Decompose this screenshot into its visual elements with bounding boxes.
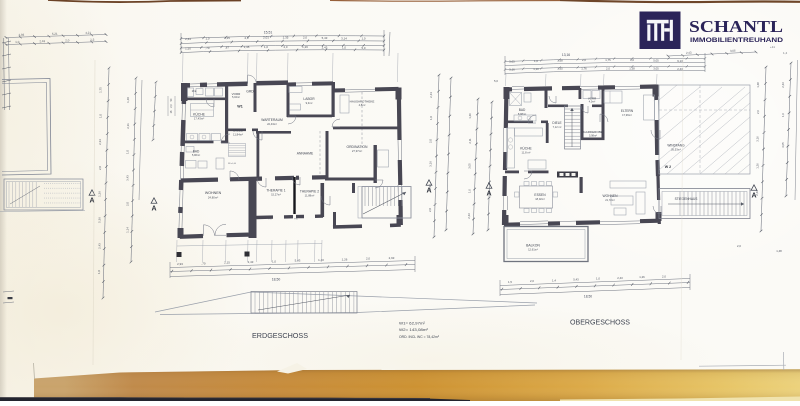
svg-text:2,93: 2,93	[19, 33, 25, 37]
svg-text:ELTERN: ELTERN	[621, 109, 634, 113]
svg-text:OBERGESCHOSS: OBERGESCHOSS	[570, 318, 630, 327]
svg-text:THERAPIE 2: THERAPIE 2	[300, 190, 319, 194]
svg-text:5,43: 5,43	[322, 36, 328, 40]
svg-text:2,34: 2,34	[98, 139, 102, 145]
svg-text:2,01: 2,01	[263, 36, 269, 40]
svg-text:4,21: 4,21	[85, 31, 91, 35]
svg-text:9,3m²: 9,3m²	[306, 101, 313, 105]
svg-text:3,05: 3,05	[781, 142, 785, 148]
svg-text:2,43: 2,43	[185, 37, 191, 41]
svg-text:STIEGENHAUS: STIEGENHAUS	[675, 197, 698, 201]
svg-text:,87: ,87	[225, 46, 229, 50]
svg-text:BAD: BAD	[519, 108, 526, 112]
svg-text:17,43m²: 17,43m²	[194, 117, 204, 121]
svg-text:2,0: 2,0	[662, 274, 666, 278]
svg-text:5,05: 5,05	[509, 59, 515, 63]
svg-text:1,26: 1,26	[755, 163, 759, 169]
svg-text:ANNAHME: ANNAHME	[297, 152, 314, 156]
svg-text:3,16: 3,16	[756, 136, 760, 142]
svg-text:2,15: 2,15	[224, 36, 230, 40]
svg-text:+11: +11	[770, 45, 775, 49]
svg-text:22,43m²: 22,43m²	[267, 122, 277, 126]
svg-text:SCHANTL: SCHANTL	[689, 17, 783, 36]
svg-text:2,0: 2,0	[530, 279, 534, 283]
svg-text:,70: ,70	[201, 261, 205, 265]
svg-text:1,38: 1,38	[557, 58, 563, 62]
svg-text:1,0: 1,0	[534, 59, 538, 63]
svg-text:5,0: 5,0	[361, 46, 365, 50]
svg-text:1,0: 1,0	[15, 40, 20, 44]
svg-text:1,26: 1,26	[302, 45, 308, 49]
svg-text:2,0: 2,0	[98, 166, 102, 170]
svg-text:1,4: 1,4	[783, 51, 788, 55]
svg-text:2,0: 2,0	[737, 244, 741, 248]
svg-text:1,10: 1,10	[533, 67, 539, 71]
svg-text:1,75: 1,75	[605, 58, 611, 62]
svg-text:12,61m²: 12,61m²	[528, 248, 538, 252]
svg-text:18,50: 18,50	[584, 295, 592, 299]
svg-text:2,43: 2,43	[39, 39, 45, 43]
svg-text:3,16: 3,16	[428, 161, 432, 167]
svg-text:1,0: 1,0	[272, 259, 276, 263]
svg-text:A: A	[751, 193, 756, 200]
svg-text:A: A	[486, 191, 491, 198]
svg-text:,70: ,70	[205, 46, 209, 50]
svg-text:GRD: GRD	[246, 90, 254, 94]
svg-text:2,43: 2,43	[97, 243, 101, 249]
svg-text:1,40: 1,40	[318, 258, 324, 262]
svg-text:IMMOBILIENTREUHAND: IMMOBILIENTREUHAND	[690, 37, 784, 44]
svg-text:KÜCHE: KÜCHE	[520, 147, 532, 151]
svg-text:1,26: 1,26	[342, 257, 348, 261]
svg-text:FB ±0,00: FB ±0,00	[228, 163, 237, 165]
svg-text:5,96m²: 5,96m²	[192, 153, 200, 157]
svg-text:1,4: 1,4	[552, 278, 556, 282]
svg-text:1,0: 1,0	[361, 37, 365, 41]
svg-text:4,0m²: 4,0m²	[589, 101, 596, 104]
svg-text:3,05: 3,05	[468, 163, 472, 169]
svg-text:2,43: 2,43	[429, 92, 433, 98]
svg-text:5,16: 5,16	[509, 68, 515, 72]
svg-text:2,43: 2,43	[781, 82, 785, 88]
svg-text:2,0: 2,0	[303, 36, 307, 40]
svg-text:15,27m²: 15,27m²	[271, 193, 281, 197]
svg-text:W1: W1	[237, 105, 242, 109]
svg-text:1,50: 1,50	[185, 46, 191, 50]
svg-text:1,0: 1,0	[342, 46, 346, 50]
svg-text:9,13: 9,13	[677, 59, 683, 63]
svg-text:BALKON: BALKON	[526, 244, 540, 248]
svg-text:1,0: 1,0	[781, 113, 785, 117]
svg-text:2,43: 2,43	[322, 45, 328, 49]
svg-text:21,72m²: 21,72m²	[605, 198, 615, 202]
svg-text:24,80m²: 24,80m²	[208, 196, 218, 200]
svg-text:A: A	[426, 188, 431, 195]
svg-text:1,76: 1,76	[581, 66, 587, 70]
svg-text:DIELE: DIELE	[552, 121, 561, 125]
svg-text:ESSEN: ESSEN	[534, 193, 546, 197]
svg-text:2,93: 2,93	[177, 262, 183, 266]
svg-text:W2= 143,08m²: W2= 143,08m²	[399, 327, 429, 332]
svg-text:3,43: 3,43	[126, 175, 130, 181]
svg-text:2,43: 2,43	[686, 51, 692, 55]
svg-text:BAD: BAD	[193, 150, 200, 154]
svg-text:1,26: 1,26	[639, 275, 645, 279]
svg-text:1,35: 1,35	[557, 67, 563, 71]
svg-text:1,0: 1,0	[205, 37, 209, 41]
svg-text:1,0: 1,0	[126, 150, 130, 154]
svg-text:27,97m²: 27,97m²	[352, 149, 362, 153]
svg-text:W 2: W 2	[665, 165, 671, 169]
svg-text:2,0: 2,0	[428, 208, 432, 212]
svg-text:5,43: 5,43	[573, 278, 579, 282]
svg-text:2,43: 2,43	[677, 67, 683, 71]
svg-text:ORD. INCL WC = 78,42m²: ORD. INCL WC = 78,42m²	[399, 334, 440, 339]
svg-text:1,48: 1,48	[756, 82, 760, 88]
svg-text:THERAPIE 1: THERAPIE 1	[266, 189, 285, 193]
svg-text:8,98m²: 8,98m²	[518, 112, 526, 116]
svg-text:26,53m²: 26,53m²	[671, 148, 681, 152]
svg-text:1,5: 1,5	[508, 280, 512, 284]
svg-text:5,98m²: 5,98m²	[589, 134, 597, 138]
svg-text:2,0: 2,0	[582, 58, 586, 62]
svg-text:5,05: 5,05	[653, 58, 659, 62]
svg-text:1,35: 1,35	[283, 36, 289, 40]
svg-text:11,88m²: 11,88m²	[305, 194, 315, 198]
svg-text:13,16: 13,16	[562, 53, 570, 57]
svg-text:5,21: 5,21	[52, 32, 58, 36]
svg-text:3,14: 3,14	[341, 36, 347, 40]
svg-text:2,0: 2,0	[283, 45, 287, 49]
svg-text:1,0: 1,0	[429, 116, 433, 120]
svg-text:2,0: 2,0	[244, 36, 248, 40]
svg-text:2,43: 2,43	[248, 260, 254, 264]
svg-text:LABOR: LABOR	[303, 97, 315, 101]
svg-text:HAUSAPOTHEKE: HAUSAPOTHEKE	[350, 100, 375, 104]
svg-text:1,38: 1,38	[629, 66, 635, 70]
svg-text:1,0: 1,0	[97, 270, 101, 274]
svg-text:ERDGESCHOSS: ERDGESCHOSS	[252, 331, 308, 340]
svg-text:18,02m²: 18,02m²	[535, 197, 545, 201]
svg-text:1,40: 1,40	[126, 97, 130, 103]
svg-text:2,43: 2,43	[617, 276, 623, 280]
svg-text:1,75: 1,75	[99, 87, 103, 93]
svg-text:1,0: 1,0	[596, 277, 600, 281]
svg-text:11,8 m²: 11,8 m²	[522, 150, 531, 154]
svg-text:M.E: M.E	[192, 89, 197, 93]
svg-text:3,05: 3,05	[730, 49, 736, 53]
svg-text:WOHNEN: WOHNEN	[205, 191, 222, 195]
svg-text:2,0: 2,0	[170, 104, 173, 108]
svg-text:5,36: 5,36	[98, 217, 102, 223]
svg-text:18,50: 18,50	[272, 278, 281, 282]
svg-text:2,0: 2,0	[125, 202, 129, 206]
svg-text:1,45: 1,45	[244, 45, 250, 49]
svg-text:1,26: 1,26	[98, 191, 102, 197]
svg-text:1,40: 1,40	[468, 113, 472, 119]
svg-text:2,11: 2,11	[126, 123, 130, 129]
svg-text:2,15: 2,15	[224, 261, 230, 265]
svg-text:5,0: 5,0	[494, 79, 498, 83]
svg-text:1,0: 1,0	[98, 114, 102, 118]
svg-text:2,43: 2,43	[467, 213, 471, 219]
svg-text:2,0: 2,0	[606, 66, 610, 70]
svg-text:2,11: 2,11	[468, 138, 472, 144]
svg-text:1,48: 1,48	[776, 249, 782, 253]
svg-text:W1= 62,97m²: W1= 62,97m²	[399, 321, 426, 326]
svg-text:WOHNEN: WOHNEN	[602, 194, 618, 198]
svg-text:5,04m²: 5,04m²	[232, 95, 240, 99]
svg-text:2,0: 2,0	[65, 38, 70, 42]
svg-text:2,0: 2,0	[756, 110, 760, 114]
svg-text:3,0: 3,0	[630, 58, 634, 62]
svg-text:11,84m²: 11,84m²	[233, 133, 243, 137]
svg-text:2,93: 2,93	[389, 256, 395, 260]
svg-text:GARDEROBE: GARDEROBE	[583, 130, 602, 134]
svg-text:15,51: 15,51	[264, 31, 273, 35]
svg-text:2,0: 2,0	[366, 257, 370, 261]
svg-text:17,96m²: 17,96m²	[622, 113, 632, 117]
svg-text:1,0: 1,0	[264, 45, 268, 49]
svg-text:3,05: 3,05	[653, 67, 659, 71]
svg-text:2,0: 2,0	[429, 139, 433, 143]
svg-text:WARTERAUM: WARTERAUM	[261, 118, 283, 122]
svg-text:1,5: 1,5	[90, 38, 95, 42]
svg-text:7,12 m²: 7,12 m²	[553, 125, 562, 129]
svg-text:A: A	[151, 206, 156, 213]
svg-text:4,8m²: 4,8m²	[359, 103, 366, 107]
svg-text:1,14: 1,14	[125, 227, 129, 233]
svg-text:1,0: 1,0	[467, 189, 471, 193]
